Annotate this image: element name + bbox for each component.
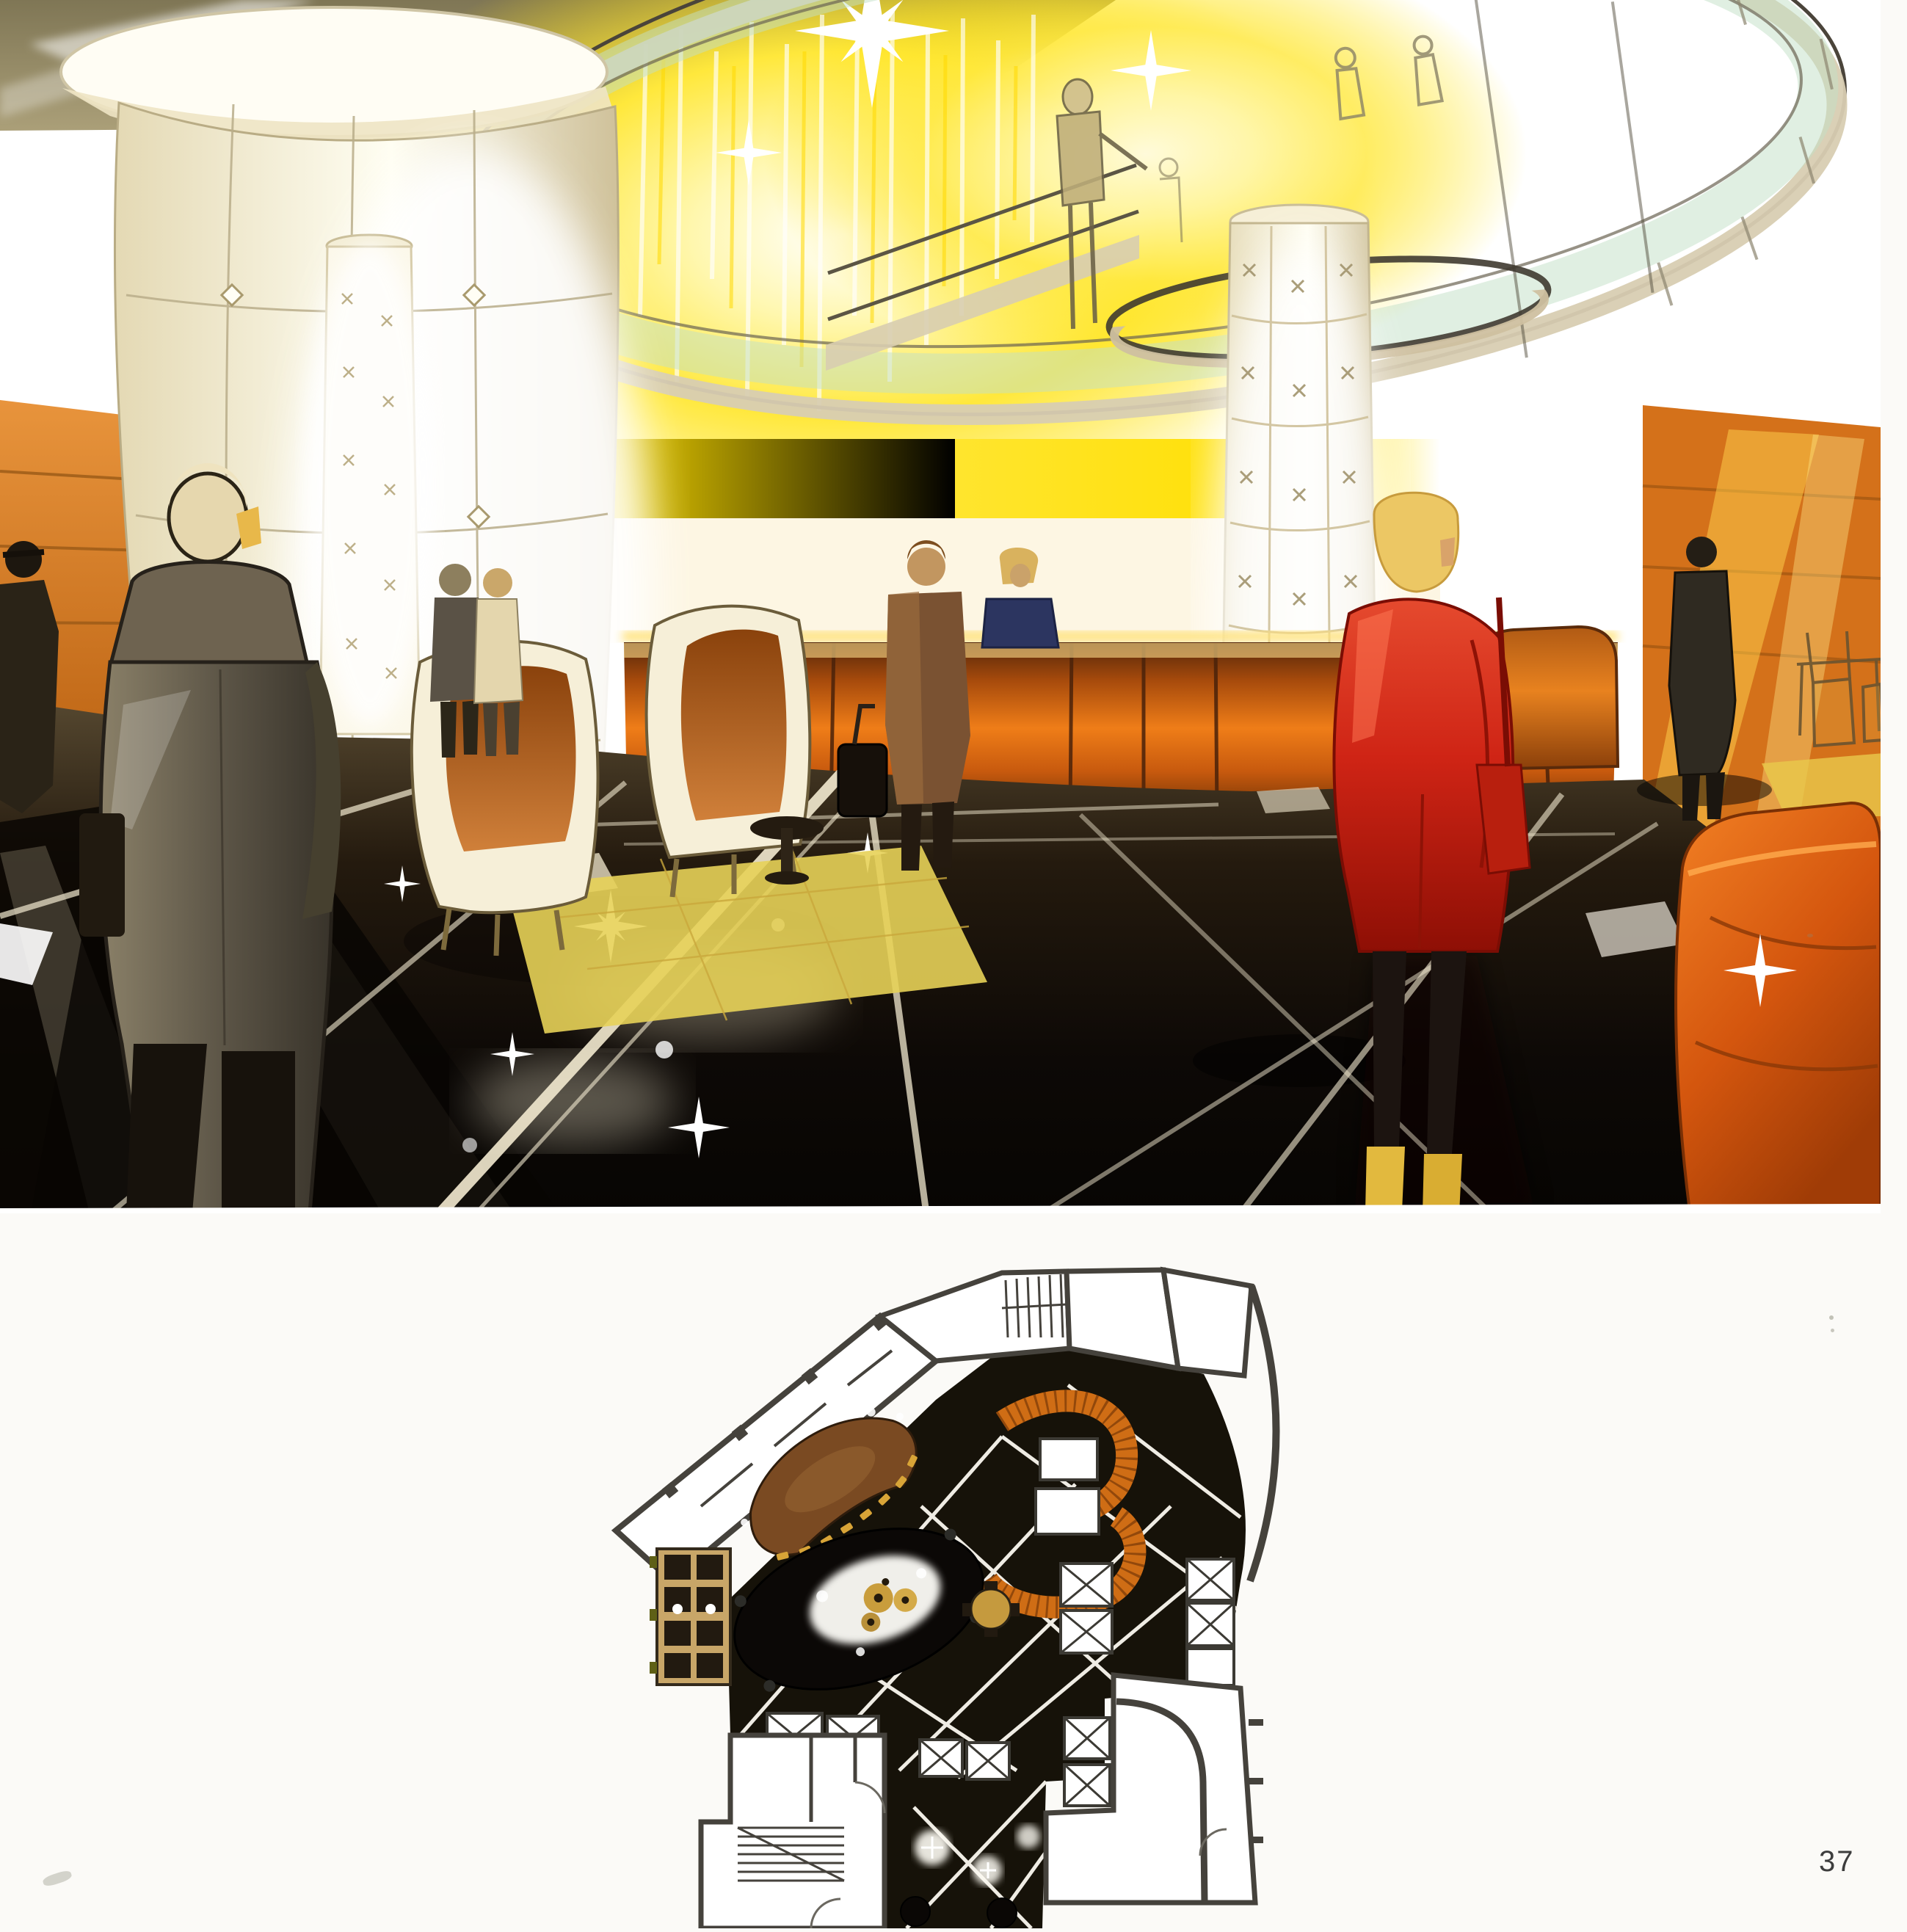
lobby-rendering-figure — [0, 0, 1881, 1213]
book-page: 37 — [0, 0, 1907, 1932]
plan-curved-wall — [1250, 1286, 1276, 1581]
lobby-rendering-canvas — [0, 0, 1881, 1213]
plan-bottom-left-rooms — [701, 1735, 885, 1928]
plan-seating-grid — [650, 1549, 730, 1685]
scan-speck — [42, 1869, 73, 1888]
floor-plan-figure — [591, 1264, 1288, 1928]
scan-speck — [1831, 1329, 1834, 1332]
boot-right — [1423, 1154, 1462, 1213]
scan-speck — [1829, 1315, 1834, 1320]
plan-stair-lower — [738, 1828, 844, 1881]
boot-left — [1365, 1147, 1405, 1211]
page-number: 37 — [1819, 1845, 1855, 1878]
lounge-chair-orange — [1676, 803, 1881, 1211]
scan-speck — [1807, 934, 1813, 937]
floor-plan-canvas — [591, 1264, 1288, 1928]
